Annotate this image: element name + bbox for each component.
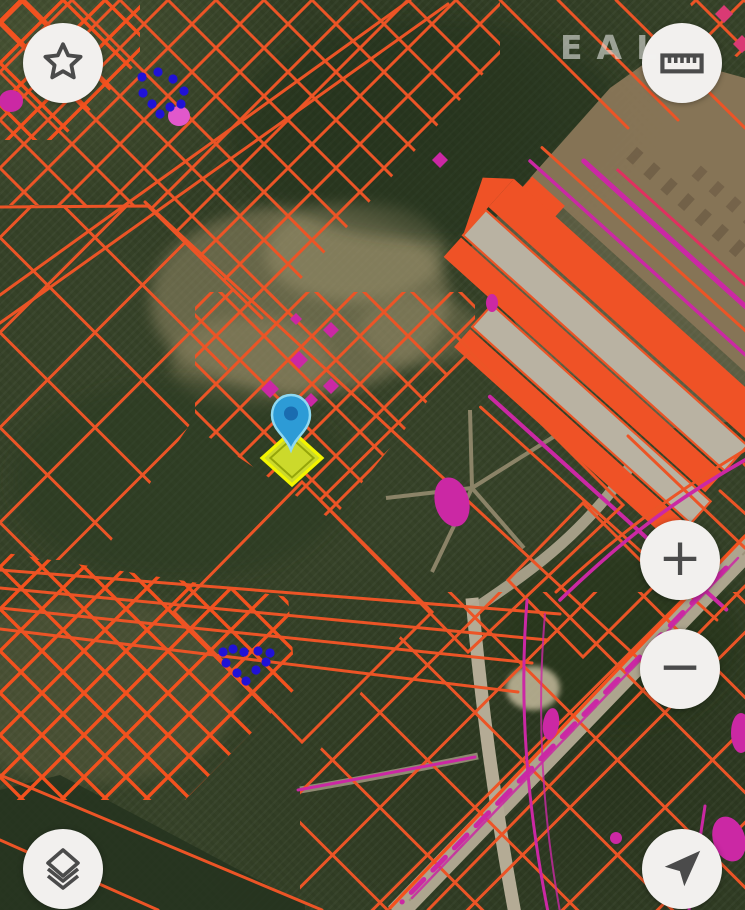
vertex-dot[interactable] [232,668,241,677]
vertex-dot[interactable] [221,658,230,667]
vertex-dot[interactable] [218,647,227,656]
vertex-dot[interactable] [165,102,174,111]
measure-button[interactable] [642,23,722,103]
map-overlay [0,0,745,910]
layers-button[interactable] [23,829,103,909]
layers-icon [39,845,87,893]
zoom-in-button[interactable]: + [640,520,720,600]
vertex-dot[interactable] [239,647,248,656]
vertex-dot[interactable] [265,648,274,657]
ruler-icon [657,38,707,88]
favorites-button[interactable] [23,23,103,103]
vertex-dot[interactable] [241,676,250,685]
vertex-dot[interactable] [176,99,185,108]
vertex-dot[interactable] [137,72,146,81]
vertex-dot[interactable] [138,88,147,97]
map-screen: EAL + − [0,0,745,910]
vertex-dot[interactable] [261,657,270,666]
compass-button[interactable] [642,829,722,909]
zoom-out-button[interactable]: − [640,629,720,709]
vertex-dot[interactable] [147,99,156,108]
star-icon [39,39,87,87]
vertex-dot[interactable] [155,109,164,118]
map-canvas[interactable] [0,0,745,910]
vertex-dot[interactable] [179,86,188,95]
vertex-dot[interactable] [153,67,162,76]
vertex-dot[interactable] [228,644,237,653]
vertex-dot[interactable] [251,665,260,674]
plus-icon: + [658,532,702,584]
vertex-dot[interactable] [168,74,177,83]
vertex-dot[interactable] [253,646,262,655]
minus-icon: − [658,641,702,693]
navigation-arrow-icon [659,846,705,892]
